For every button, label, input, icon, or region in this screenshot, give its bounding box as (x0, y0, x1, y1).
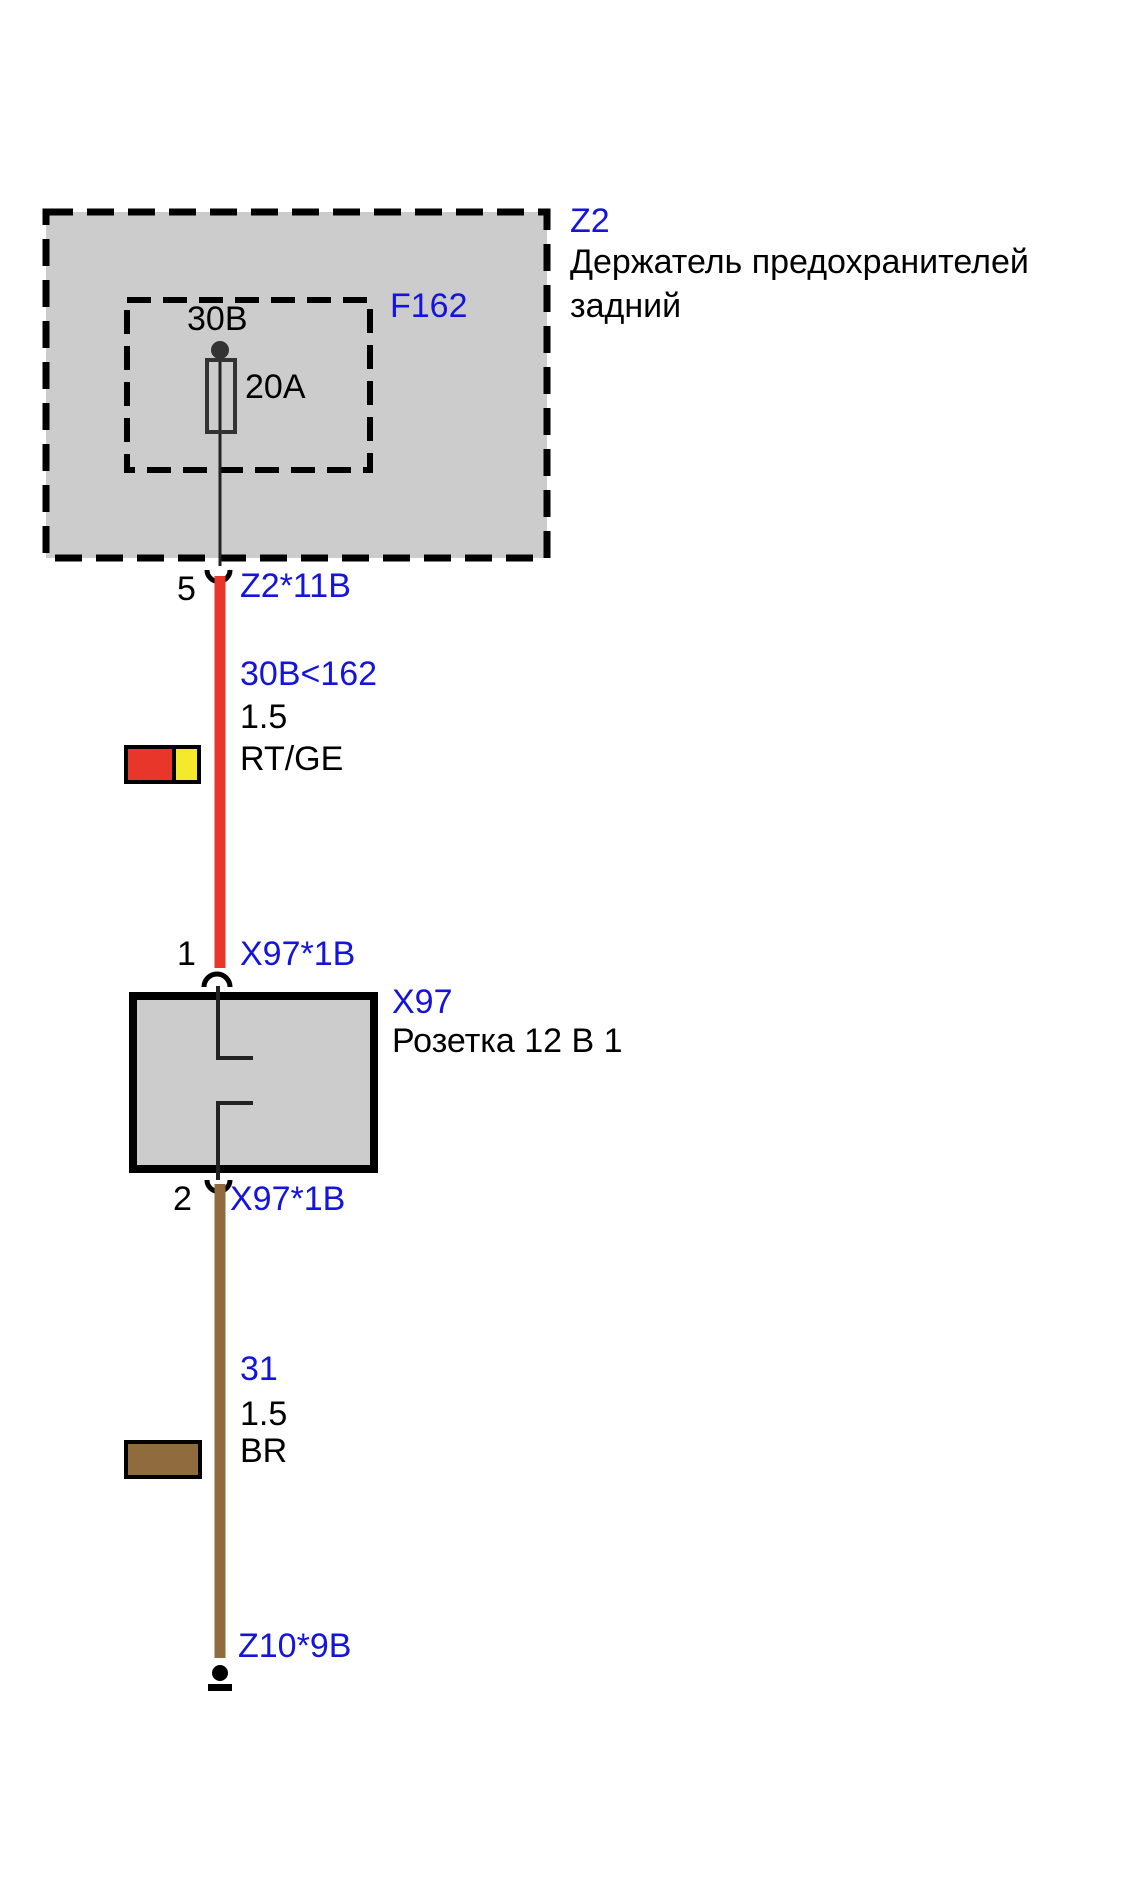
supply-junction-dot-icon (211, 341, 229, 359)
x97-ref-label[interactable]: X97 (392, 985, 453, 1019)
ground-end-icon (208, 1665, 232, 1691)
power-wire-circuit-label[interactable]: 30B<162 (240, 657, 377, 691)
f162-ref-label[interactable]: F162 (390, 289, 468, 323)
fuse-source-label: 30B (187, 302, 248, 336)
z2-ref-label[interactable]: Z2 (570, 204, 610, 238)
ground-wire-color-code-label: BR (240, 1434, 287, 1468)
x97-component-box (133, 996, 374, 1169)
ground-bar (208, 1684, 232, 1691)
pin1-number-label: 1 (177, 937, 196, 971)
ground-wire (215, 1184, 226, 1658)
ground-connector-label[interactable]: Z10*9B (238, 1629, 351, 1663)
z2-name-label: Держатель предохранителей задний (570, 240, 1029, 328)
pin1-connector-label[interactable]: X97*1B (240, 937, 355, 971)
z2-name-line2: задний (570, 287, 681, 325)
wire-color-swatch-rtge (126, 747, 199, 782)
swatch-yellow-segment (174, 747, 199, 782)
ground-wire-gauge-label: 1.5 (240, 1397, 287, 1431)
power-wire-color-code-label: RT/GE (240, 742, 343, 776)
pin1-socket-icon (204, 974, 230, 987)
power-wire (215, 576, 226, 968)
z2-name-line1: Держатель предохранителей (570, 243, 1029, 281)
wiring-diagram-canvas: Z2 Держатель предохранителей задний F162… (0, 0, 1125, 1903)
pin2-number-label: 2 (173, 1182, 192, 1216)
pin5-number-label: 5 (177, 572, 196, 606)
pin2-connector-label[interactable]: X97*1B (230, 1182, 345, 1216)
pin5-connector-label[interactable]: Z2*11B (240, 569, 351, 603)
x97-name-label: Розетка 12 В 1 (392, 1024, 623, 1058)
ground-dot (212, 1665, 228, 1681)
fuse-rating-label: 20A (245, 370, 306, 404)
power-wire-gauge-label: 1.5 (240, 700, 287, 734)
swatch-brown-segment (126, 1442, 200, 1477)
ground-wire-circuit-label[interactable]: 31 (240, 1352, 278, 1386)
wire-color-swatch-br (126, 1442, 200, 1477)
